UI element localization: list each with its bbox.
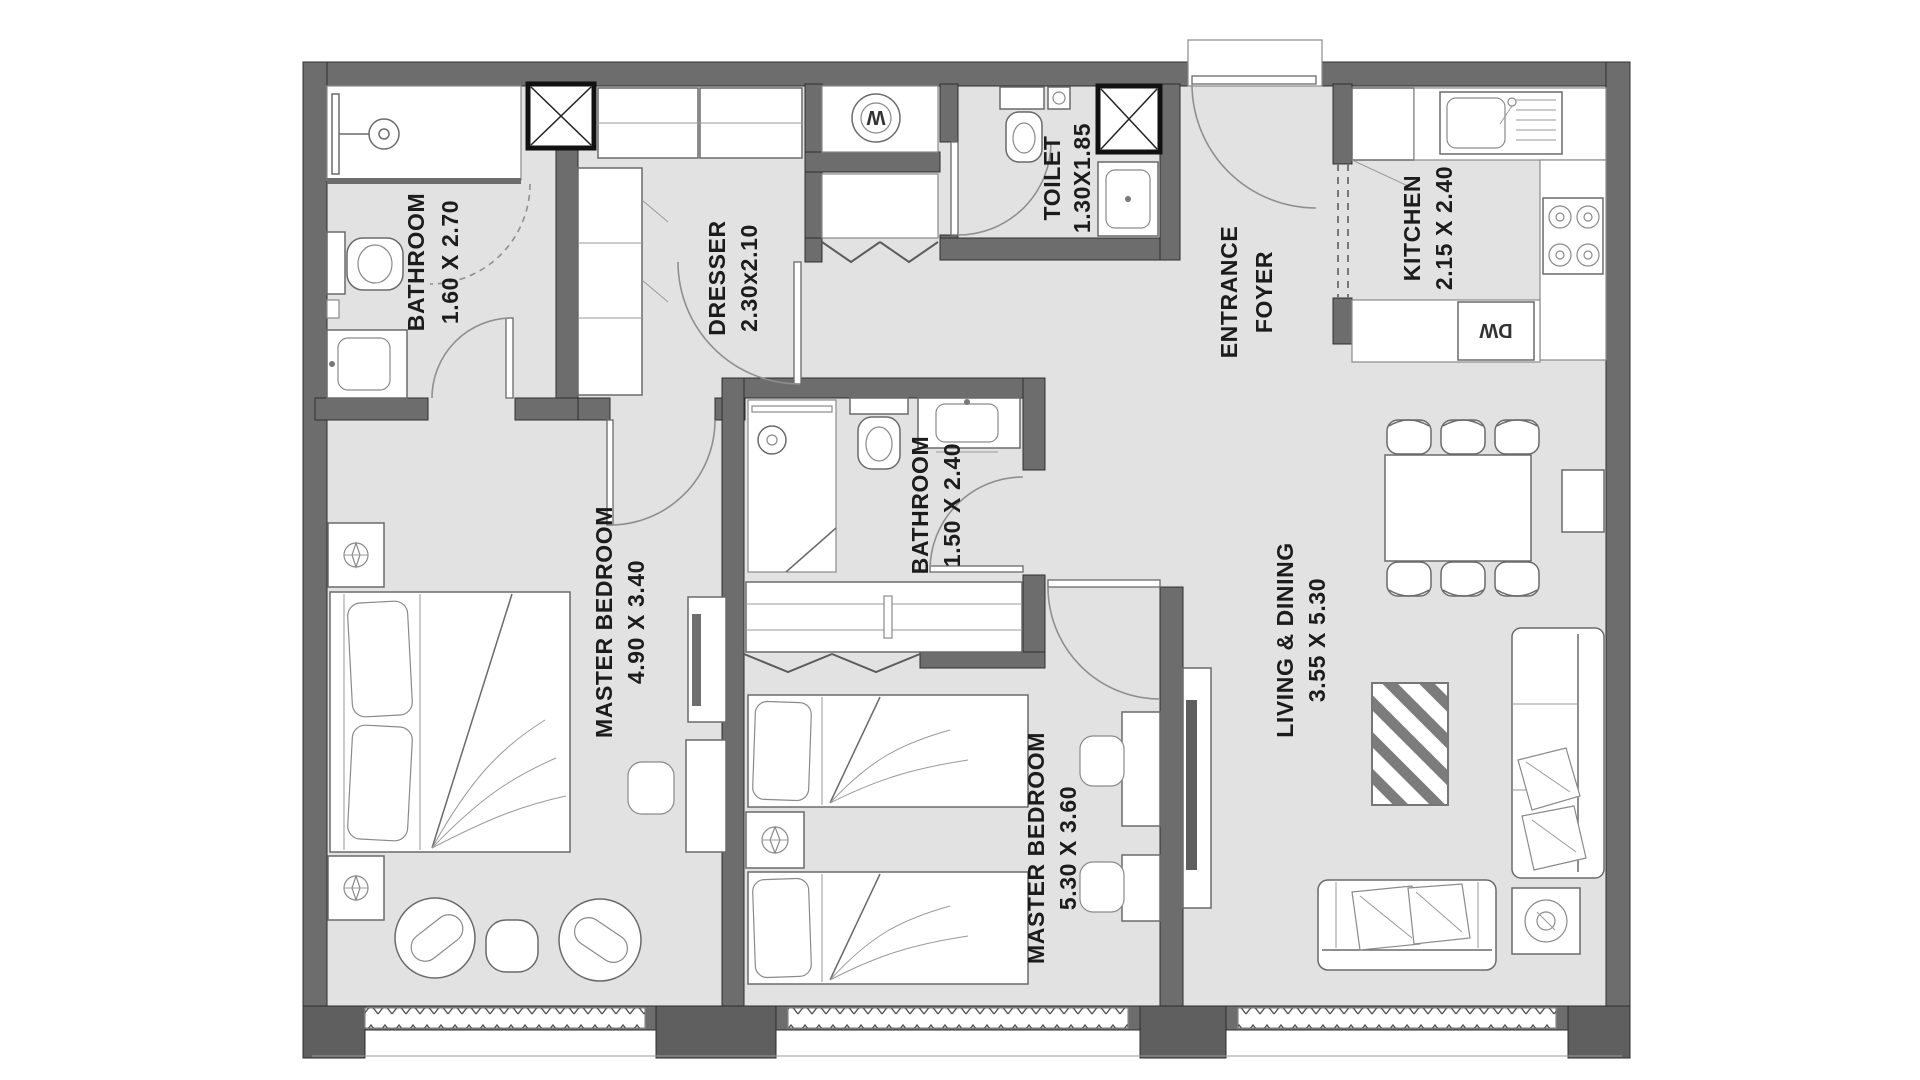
window-master-bedroom-1 xyxy=(365,1008,645,1028)
wall-kitchen-left xyxy=(1333,84,1352,164)
washer-label: W xyxy=(866,106,885,128)
mb1-dims: 4.90 X 3.40 xyxy=(623,560,649,684)
twin-bed xyxy=(748,872,1028,984)
column-stub xyxy=(1140,1006,1226,1058)
wall-closet-corner xyxy=(805,238,822,262)
foyer-label-2: FOYER xyxy=(1251,251,1277,333)
dining-chair xyxy=(1495,562,1539,596)
floorplan-page: BATHROOM 1.60 X 2.70 W DRESSER 2.30x2.10 xyxy=(0,0,1920,1080)
column-stub xyxy=(1568,1006,1630,1058)
rug xyxy=(1372,683,1448,805)
nightstand xyxy=(746,812,804,868)
tv-console xyxy=(1183,668,1211,908)
windows xyxy=(365,1008,1556,1028)
dining-set xyxy=(1385,420,1539,596)
dining-chair xyxy=(1387,420,1431,454)
wall-wardrobe-bottom xyxy=(920,652,1045,668)
console-table xyxy=(1562,470,1604,532)
bathroom1-label: BATHROOM xyxy=(403,193,429,332)
bathroom2-label: BATHROOM xyxy=(907,436,933,575)
wall-mb2-living xyxy=(1160,587,1183,1006)
dining-chair xyxy=(1441,420,1485,454)
floorplan-drawing: BATHROOM 1.60 X 2.70 W DRESSER 2.30x2.10 xyxy=(0,0,1920,1080)
mb2-wardrobe xyxy=(746,582,1022,652)
nightstand xyxy=(328,523,384,587)
shower-tray xyxy=(327,86,521,180)
desk-chair xyxy=(1080,862,1124,912)
top-wall-left xyxy=(303,62,1188,86)
wall-kitchen-stub xyxy=(1333,298,1352,344)
bathroom2-dims: 1.50 X 2.40 xyxy=(939,443,965,567)
wardrobe-top xyxy=(598,88,802,158)
sofa xyxy=(1512,628,1604,878)
wall-toilet-bottom xyxy=(940,238,1180,260)
side-table-round xyxy=(486,920,538,972)
toilet-fixture xyxy=(327,232,403,294)
dining-chair xyxy=(1387,562,1431,596)
wall-bath1-bottom-r xyxy=(515,398,578,420)
toilet-fixture xyxy=(850,398,908,469)
shaft-2 xyxy=(1098,86,1160,152)
hall-closet xyxy=(822,174,938,238)
wall-laundry-bottom xyxy=(805,152,940,172)
dining-chair xyxy=(1495,420,1539,454)
desk-chair xyxy=(1080,736,1124,786)
wall-mb1-top-l xyxy=(578,398,610,420)
lamp-table xyxy=(1512,888,1580,954)
dresser-label: DRESSER xyxy=(704,220,730,335)
kitchen-sink xyxy=(1440,92,1562,154)
dresser-dims: 2.30x2.10 xyxy=(736,224,762,332)
laundry-closet: W xyxy=(822,86,938,152)
kitchen-label: KITCHEN xyxy=(1399,175,1425,281)
swivel-chair xyxy=(395,898,475,978)
mb1-label: MASTER BEDROOM xyxy=(591,506,617,738)
column-stub xyxy=(303,1006,365,1058)
wall-toilet-right xyxy=(1160,84,1180,260)
top-wall-right xyxy=(1322,62,1630,86)
dining-chair xyxy=(1441,562,1485,596)
double-bed xyxy=(330,592,570,852)
nightstand xyxy=(328,856,384,920)
toilet-sink xyxy=(1098,162,1158,236)
living-label: LIVING & DINING xyxy=(1272,542,1298,738)
swivel-chair xyxy=(559,899,641,981)
dishwasher-label: DW xyxy=(1479,319,1512,341)
pillow xyxy=(1522,806,1586,870)
bedroom-cabinet xyxy=(688,597,726,722)
mb2-dims: 5.30 X 3.60 xyxy=(1055,786,1081,910)
shaft-1 xyxy=(528,84,594,148)
counter-bottom: DW xyxy=(1352,300,1540,362)
column-stub xyxy=(656,1006,776,1058)
toilet-label: TOILET xyxy=(1039,136,1065,221)
vanity-sink xyxy=(918,398,1020,452)
twin-bed xyxy=(748,695,1028,807)
entrance-door-leaf xyxy=(1192,76,1316,84)
right-wall xyxy=(1606,62,1630,1030)
shower-curb xyxy=(327,178,521,184)
foyer-label-1: ENTRANCE xyxy=(1216,226,1242,359)
shower xyxy=(748,400,836,572)
shower-rail xyxy=(332,94,339,174)
living-dims: 3.55 X 5.30 xyxy=(1304,578,1330,702)
kitchen-dims: 2.15 X 2.40 xyxy=(1431,166,1457,290)
toilet-dims: 1.30X1.85 xyxy=(1069,123,1095,233)
loveseat xyxy=(1318,880,1496,970)
wall-bath1-bottom-l xyxy=(315,398,428,420)
paper-holder xyxy=(327,300,339,318)
vanity-sink xyxy=(327,330,407,398)
desk-chair xyxy=(628,762,674,814)
stove xyxy=(1543,198,1603,274)
window-master-bedroom-2 xyxy=(788,1008,1128,1028)
left-wall xyxy=(303,62,327,1030)
mb2-label: MASTER BEDROOM xyxy=(1023,732,1049,964)
toilet-fixture xyxy=(1000,87,1044,162)
wall-toilet-left-top xyxy=(940,84,958,142)
wall-basin xyxy=(1048,87,1070,109)
window-living xyxy=(1238,1008,1556,1028)
bathroom1-dims: 1.60 X 2.70 xyxy=(437,200,463,324)
dining-table xyxy=(1385,455,1531,561)
wall-bath2-right-top xyxy=(1023,378,1045,470)
